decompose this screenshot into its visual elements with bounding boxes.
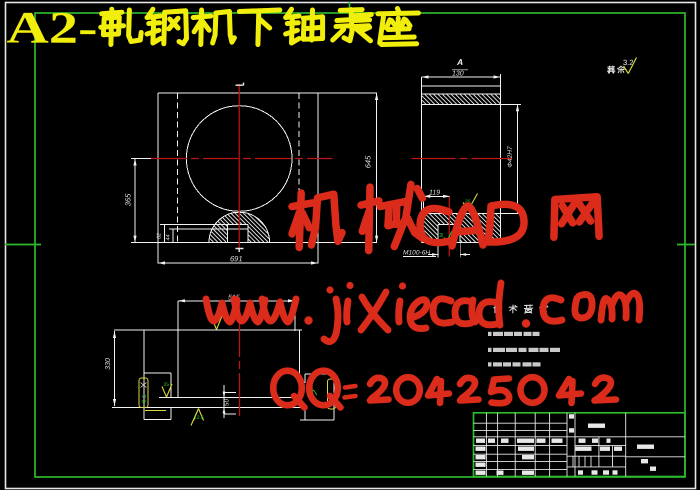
svg-text:330: 330 [105, 358, 112, 370]
svg-text:A2-: A2- [6, 3, 97, 53]
svg-text:12.5: 12.5 [194, 415, 204, 421]
svg-text:50: 50 [224, 399, 231, 407]
svg-text:365: 365 [124, 193, 133, 206]
svg-text:691: 691 [230, 254, 243, 263]
svg-text:130: 130 [452, 71, 464, 78]
svg-text:M: M [439, 233, 445, 237]
svg-text:62: 62 [157, 233, 163, 239]
svg-text:0.1: 0.1 [141, 394, 148, 403]
svg-text:25: 25 [163, 382, 169, 388]
svg-text:119: 119 [429, 190, 440, 197]
svg-text:645: 645 [364, 155, 373, 168]
svg-text:Φ42H7: Φ42H7 [507, 146, 514, 168]
svg-text:44: 44 [166, 235, 172, 241]
svg-text:M100-6H: M100-6H [403, 250, 430, 257]
svg-text:A: A [456, 57, 463, 67]
